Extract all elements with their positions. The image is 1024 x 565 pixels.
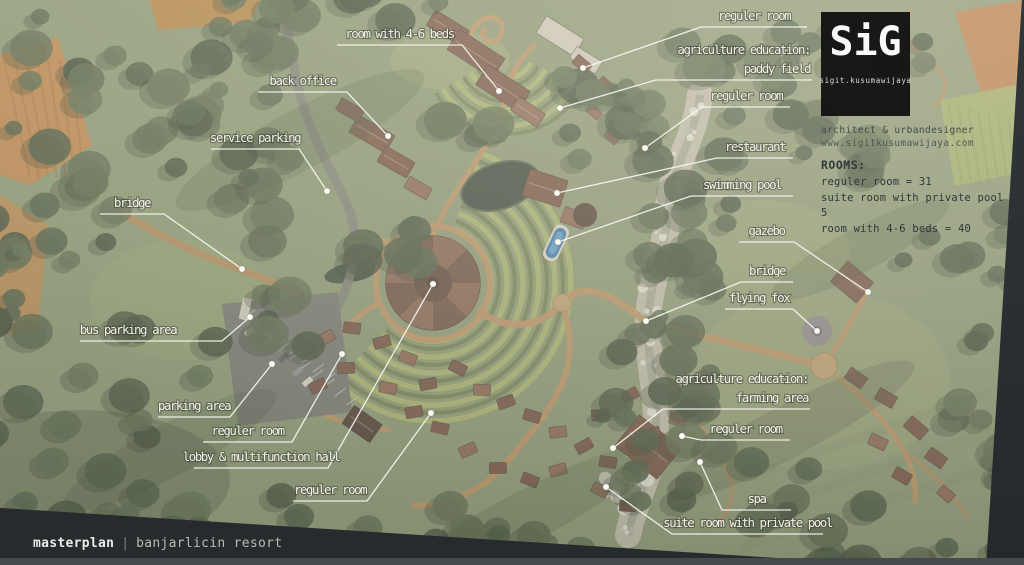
footer-bar: masterplan | banjarlicin resort (33, 536, 282, 551)
rooms-legend-item: suite room with private pool = 5 (821, 191, 1024, 222)
rooms-legend-title: ROOMS: (821, 158, 1024, 172)
footer-subtitle: banjarlicin resort (136, 536, 282, 551)
sig-logo-card: SiG sigit.kusumawijaya (821, 12, 910, 116)
masterplan-poster: room with 4-6 bedsback officeservice par… (0, 0, 1024, 565)
credit-website: www.sigitkusumawijaya.com (821, 137, 974, 150)
sig-logo-subtext: sigit.kusumawijaya (819, 76, 911, 85)
architect-credits: architect & urbandesigner www.sigitkusum… (821, 124, 974, 150)
footer-separator: | (121, 536, 129, 551)
rooms-legend: ROOMS: reguler room = 31 suite room with… (821, 158, 1024, 237)
bottom-strip (0, 558, 1024, 565)
rooms-legend-item: reguler room = 31 (821, 175, 1024, 191)
sig-logo: SiG (829, 22, 901, 62)
credit-role: architect & urbandesigner (821, 124, 974, 137)
rooms-legend-item: room with 4-6 beds = 40 (821, 222, 1024, 238)
footer-title: masterplan (33, 536, 114, 551)
